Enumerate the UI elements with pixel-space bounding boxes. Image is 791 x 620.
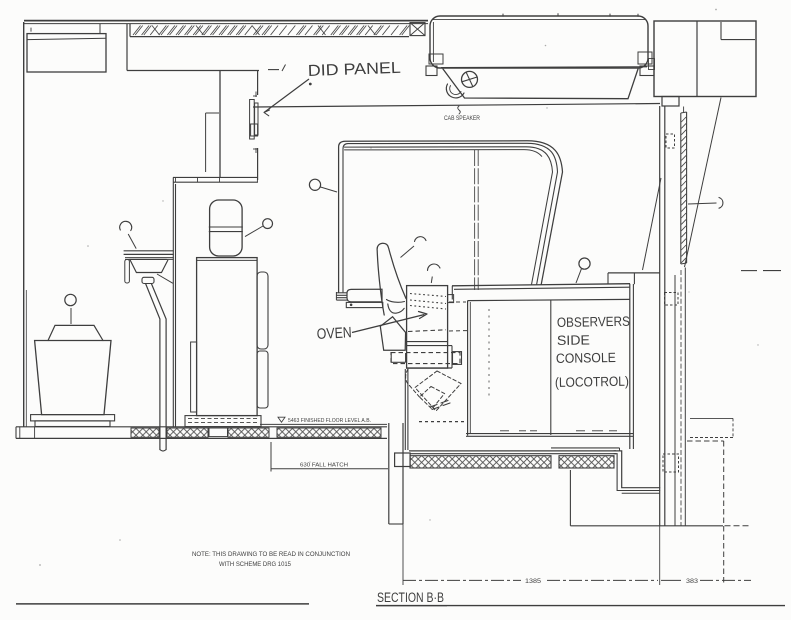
svg-text:SECTION B·B: SECTION B·B [377,590,444,605]
svg-text:NOTE: THIS DRAWING TO BE READ: NOTE: THIS DRAWING TO BE READ IN CONJUNC… [192,551,350,558]
svg-text:5463 FINISHED FLOOR LEVEL A.B.: 5463 FINISHED FLOOR LEVEL A.B. [288,418,371,424]
svg-text:(LOCOTROL): (LOCOTROL) [555,374,629,390]
svg-text:OVEN: OVEN [316,324,352,343]
svg-text:WITH SCHEME DRG 1015: WITH SCHEME DRG 1015 [219,561,291,568]
svg-text:SIDE: SIDE [557,332,590,348]
svg-text:OBSERVERS: OBSERVERS [557,314,630,330]
svg-text:1385: 1385 [525,578,541,585]
svg-text:630 FALL HATCH: 630 FALL HATCH [300,463,348,469]
svg-text:CONSOLE: CONSOLE [556,350,616,366]
svg-text:DID PANEL: DID PANEL [308,60,402,80]
svg-text:CAB SPEAKER: CAB SPEAKER [444,116,481,122]
svg-text:383: 383 [686,578,698,585]
